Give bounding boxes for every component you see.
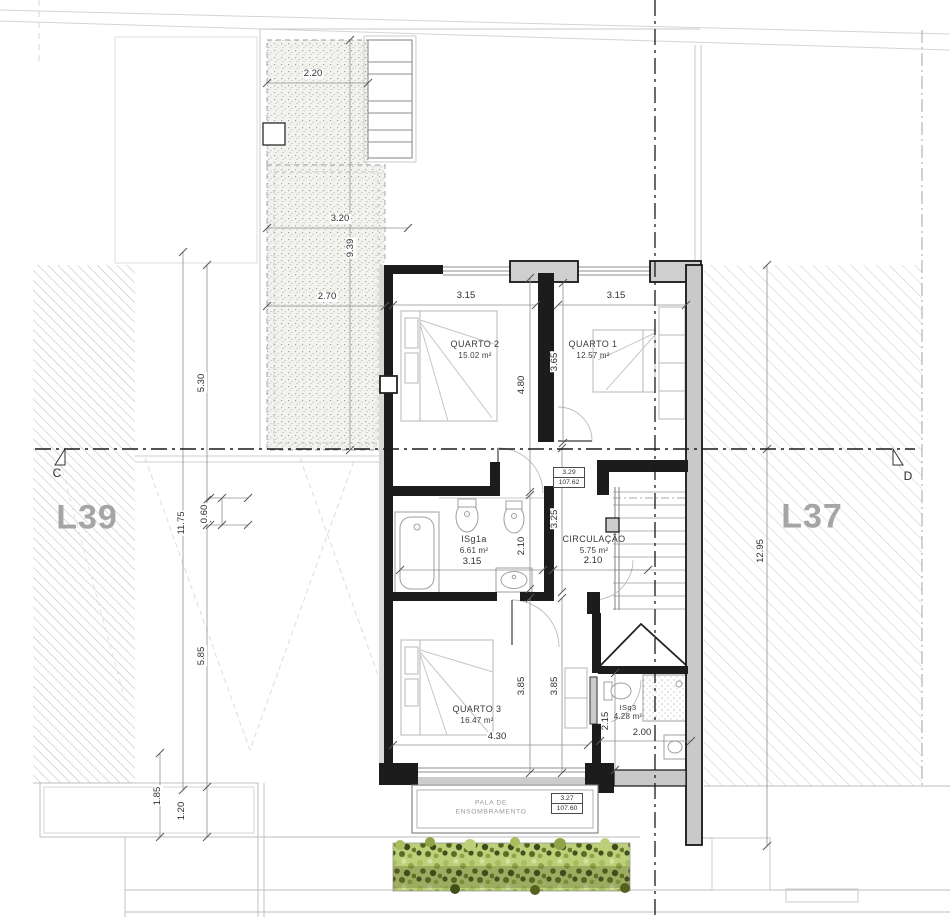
dimension-label: 2.10 [517,536,527,557]
dimension-label: 2.20 [303,69,324,79]
room-name: ISq3 [614,703,643,712]
room-name: ISg1a [460,534,489,545]
dimension-label: 3.20 [330,214,351,224]
hedge-vegetation [393,837,630,895]
dimension-label: 5.30 [197,373,207,394]
dimension-label: 3.15 [606,291,627,301]
dimension-label: 3.65 [550,352,560,373]
dimension-label: 2.00 [632,728,653,738]
exterior-stair [364,36,416,162]
dimension-label: 5.85 [197,646,207,667]
dimension-label: 9.39 [346,238,356,259]
room-name: QUARTO 1 [569,339,618,350]
dimension-label: 1.20 [177,801,187,822]
room-label-quarto2: QUARTO 2 15.02 m² [451,339,500,361]
dimension-label: 3.25 [550,509,560,530]
lot-label-l37: L37 [781,498,843,537]
room-label-isq3: ISq3 4.28 m² [614,703,643,721]
level-marker-upper: 3.29 107.62 [553,467,585,488]
dimension-label: 11.75 [177,510,187,535]
room-area: 16.47 m² [453,715,502,726]
room-label-isg1a: ISg1a 6.61 m² [460,534,489,556]
dimension-label: 4.80 [517,375,527,396]
room-area: 4.28 m² [614,712,643,721]
dimension-label: 2.10 [583,556,604,566]
room-label-circulacao: CIRCULAÇÃO 5.75 m² [562,534,625,556]
level-marker-lower: 3.27 107.60 [551,793,583,814]
dimension-label: 3.85 [517,676,527,697]
section-marker-c: C [53,466,62,480]
section-marker-d: D [904,469,913,483]
dimension-label: 2.15 [601,711,611,732]
dimension-label: 12.95 [756,538,766,564]
floor-plan-canvas: QUARTO 2 15.02 m² QUARTO 1 12.57 m² ISg1… [0,0,950,917]
dimension-label: 3.15 [456,291,477,301]
room-area: 12.57 m² [569,350,618,361]
room-name: QUARTO 3 [453,704,502,715]
dimension-label: 0.60 [200,504,210,525]
room-name: QUARTO 2 [451,339,500,350]
lot-label-l39: L39 [56,499,118,538]
dimension-label: 1.85 [153,786,163,807]
room-name: CIRCULAÇÃO [562,534,625,545]
gravel-terrace [263,40,385,450]
floor-plan-drawing [0,0,950,917]
dimension-label: 4.30 [487,732,508,742]
room-label-quarto1: QUARTO 1 12.57 m² [569,339,618,361]
room-label-quarto3: QUARTO 3 16.47 m² [453,704,502,726]
room-area: 15.02 m² [451,350,500,361]
canopy-label: PALA DE ENSOMBRAMENTO [455,800,526,817]
room-area: 6.61 m² [460,545,489,556]
dimension-label: 3.15 [462,557,483,567]
dimension-label: 2.70 [317,292,338,302]
dimension-label: 3.85 [550,676,560,697]
